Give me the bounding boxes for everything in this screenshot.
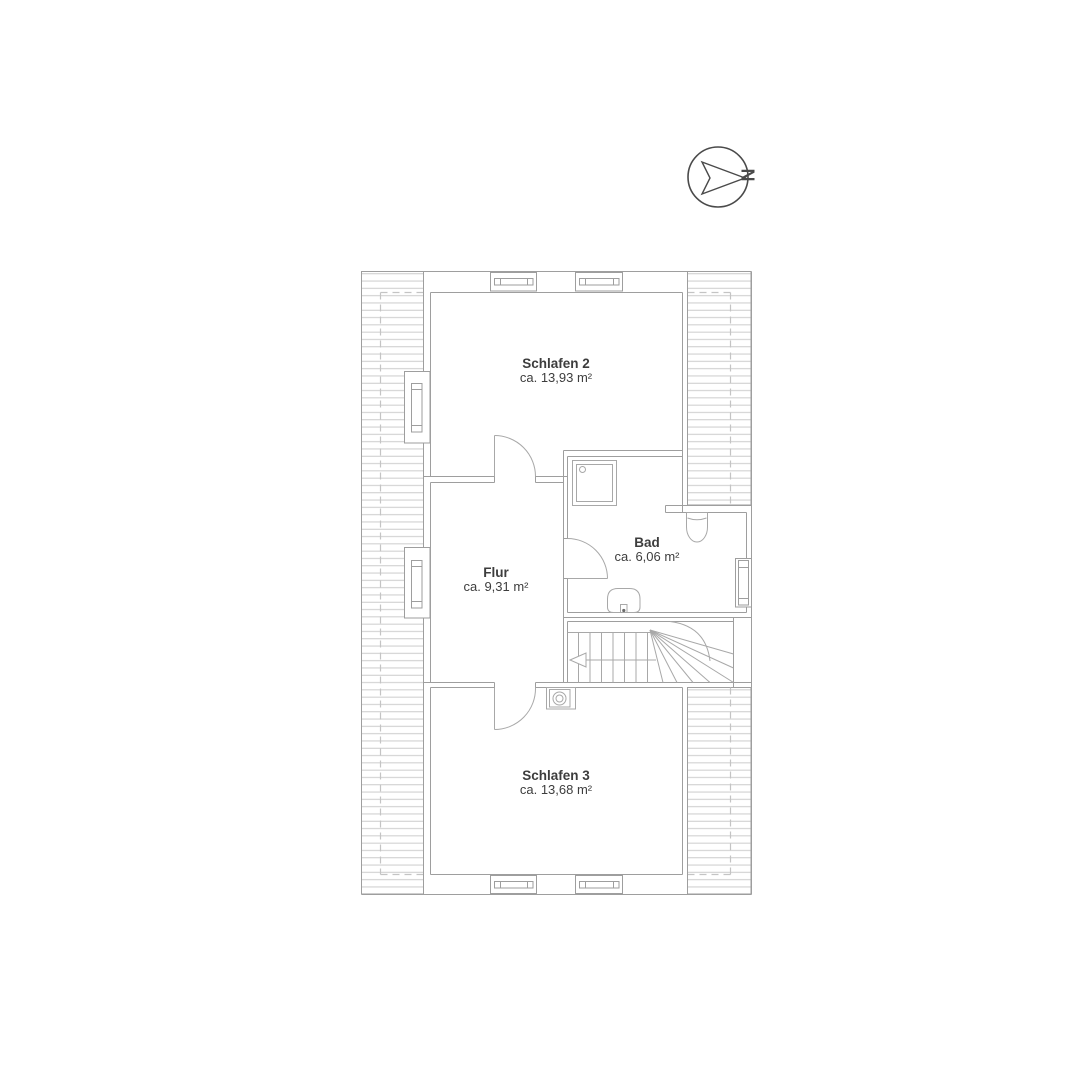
north-label: N [739, 169, 757, 182]
floor-plan-drawing [0, 0, 1080, 1080]
floor-plan-page: Schlafen 2 ca. 13,93 m² Bad ca. 6,06 m² … [0, 0, 1080, 1080]
sink-icon [608, 589, 641, 613]
shower-icon [573, 461, 617, 506]
chimney-icon [547, 688, 576, 710]
toilet-icon [687, 513, 708, 543]
